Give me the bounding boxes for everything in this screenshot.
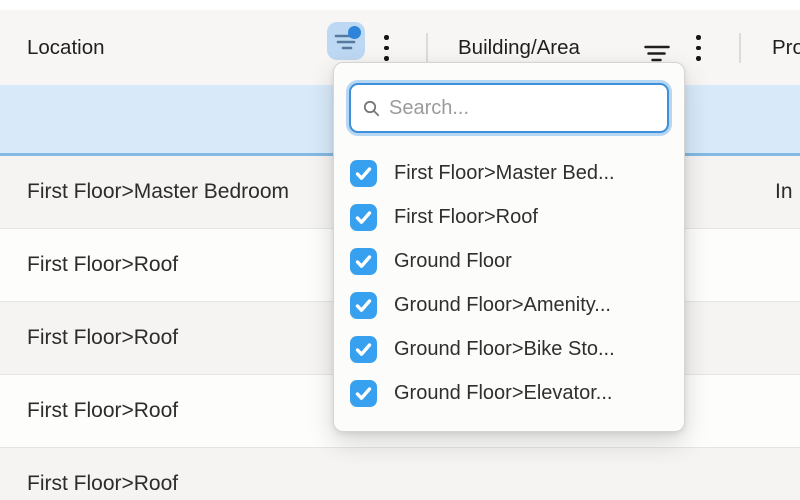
checkbox-checked-icon[interactable]	[350, 248, 377, 275]
checkbox-checked-icon[interactable]	[350, 292, 377, 319]
filter-option[interactable]: Ground Floor	[334, 239, 684, 283]
checkbox-checked-icon[interactable]	[350, 160, 377, 187]
column-header-product-partial: Pro	[772, 36, 800, 60]
filter-option-label: Ground Floor	[394, 250, 512, 273]
building-menu-button[interactable]	[696, 35, 701, 61]
filter-option[interactable]: Ground Floor>Bike Sto...	[334, 327, 684, 371]
column-header-location: Location	[27, 36, 105, 60]
location-cell: First Floor>Master Bedroom	[27, 180, 289, 204]
header-divider	[426, 33, 428, 63]
location-cell: First Floor>Roof	[27, 472, 178, 496]
filter-active-icon	[327, 22, 365, 60]
header-divider	[739, 33, 741, 63]
search-icon	[363, 100, 380, 117]
filter-option[interactable]: First Floor>Master Bed...	[334, 151, 684, 195]
status-cell: In P	[775, 180, 800, 204]
column-header-building-area: Building/Area	[458, 36, 580, 60]
location-filter-dropdown: First Floor>Master Bed... First Floor>Ro…	[333, 62, 685, 432]
location-cell: First Floor>Roof	[27, 326, 178, 350]
filter-search-field[interactable]	[349, 83, 669, 133]
location-cell: First Floor>Roof	[27, 253, 178, 277]
filter-option[interactable]: Ground Floor>Amenity...	[334, 283, 684, 327]
filter-option[interactable]: Ground Floor>Elevator...	[334, 371, 684, 415]
table-row[interactable]: First Floor>Roof	[0, 448, 800, 500]
filter-option-label: Ground Floor>Amenity...	[394, 294, 611, 317]
checkbox-checked-icon[interactable]	[350, 380, 377, 407]
filter-option-label: Ground Floor>Bike Sto...	[394, 338, 615, 361]
table-view: Location Building/Area	[0, 0, 800, 500]
checkbox-checked-icon[interactable]	[350, 336, 377, 363]
filter-icon	[644, 44, 670, 64]
location-filter-button[interactable]	[327, 22, 365, 60]
checkbox-checked-icon[interactable]	[350, 204, 377, 231]
filter-option-label: Ground Floor>Elevator...	[394, 382, 612, 405]
search-input[interactable]	[389, 97, 655, 120]
location-menu-button[interactable]	[384, 35, 389, 61]
location-cell: First Floor>Roof	[27, 399, 178, 423]
filter-option-label: First Floor>Roof	[394, 206, 538, 229]
filter-option-label: First Floor>Master Bed...	[394, 162, 615, 185]
filter-option[interactable]: First Floor>Roof	[334, 195, 684, 239]
